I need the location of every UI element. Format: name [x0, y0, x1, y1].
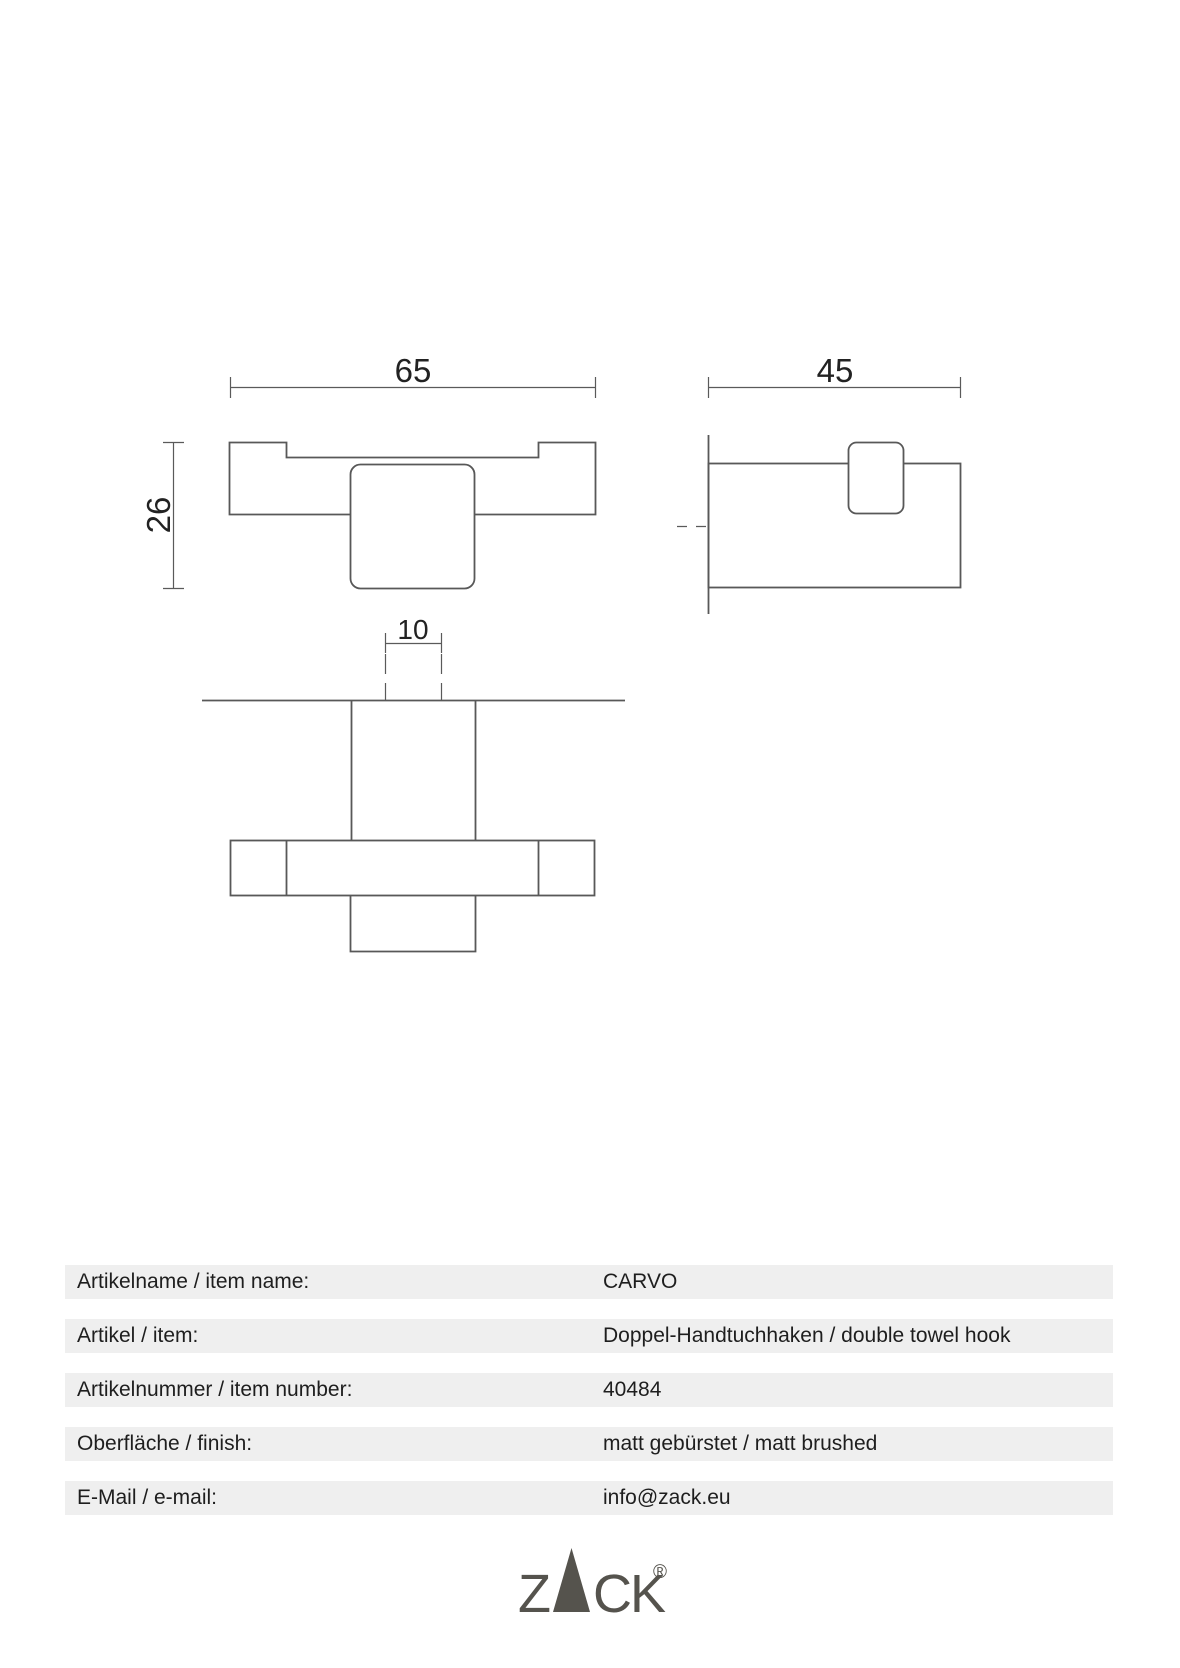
- bottom-hook-dimension-label: 10: [397, 614, 428, 645]
- letter-a-triangle-icon: [553, 1548, 590, 1612]
- spec-table: Artikelname / item name: CARVO Artikel /…: [65, 1265, 1113, 1535]
- side-view-body: [709, 464, 961, 588]
- spec-value: 40484: [603, 1373, 661, 1407]
- front-height-dimension: 26: [140, 442, 184, 589]
- registered-trademark-icon: ®: [653, 1562, 667, 1583]
- side-depth-dimension-label: 45: [817, 352, 854, 389]
- spec-label: Artikelnummer / item number:: [77, 1373, 352, 1407]
- front-view: 65 26: [140, 352, 596, 589]
- spec-row-email: E-Mail / e-mail: info@zack.eu: [65, 1481, 1113, 1515]
- spec-value: Doppel-Handtuchhaken / double towel hook: [603, 1319, 1010, 1353]
- front-height-dimension-label: 26: [140, 497, 177, 534]
- spec-value: matt gebürstet / matt brushed: [603, 1427, 877, 1461]
- spec-label: Artikel / item:: [77, 1319, 198, 1353]
- spec-label: Artikelname / item name:: [77, 1265, 309, 1299]
- spec-row-item: Artikel / item: Doppel-Handtuchhaken / d…: [65, 1319, 1113, 1353]
- spec-value: CARVO: [603, 1265, 677, 1299]
- zack-logo-graphic: Z CK ®: [505, 1538, 685, 1623]
- technical-drawing: 65 26 45: [0, 0, 1180, 1010]
- spec-label: E-Mail / e-mail:: [77, 1481, 217, 1515]
- bottom-hook-extension-lines: [386, 654, 442, 700]
- bottom-view: 10: [202, 614, 625, 952]
- side-view-hook-pin: [849, 443, 904, 514]
- bottom-view-crossbar: [231, 841, 595, 896]
- front-width-dimension-label: 65: [395, 352, 432, 389]
- spec-row-item-name: Artikelname / item name: CARVO: [65, 1265, 1113, 1299]
- datasheet-page: 65 26 45: [0, 0, 1180, 1668]
- bottom-view-lower-block: [351, 896, 476, 952]
- zack-logo: Z CK ®: [505, 1538, 685, 1623]
- logo-letter-z: Z: [518, 1564, 550, 1623]
- bottom-hook-width-dimension: 10: [385, 614, 442, 700]
- side-view: 45: [677, 352, 961, 614]
- spec-value: info@zack.eu: [603, 1481, 731, 1515]
- side-depth-dimension: 45: [708, 352, 961, 398]
- front-view-hook-plate: [351, 465, 475, 589]
- spec-row-finish: Oberfläche / finish: matt gebürstet / ma…: [65, 1427, 1113, 1461]
- bottom-view-stem-lines: [352, 700, 476, 840]
- spec-row-item-number: Artikelnummer / item number: 40484: [65, 1373, 1113, 1407]
- front-width-dimension: 65: [230, 352, 596, 398]
- spec-label: Oberfläche / finish:: [77, 1427, 252, 1461]
